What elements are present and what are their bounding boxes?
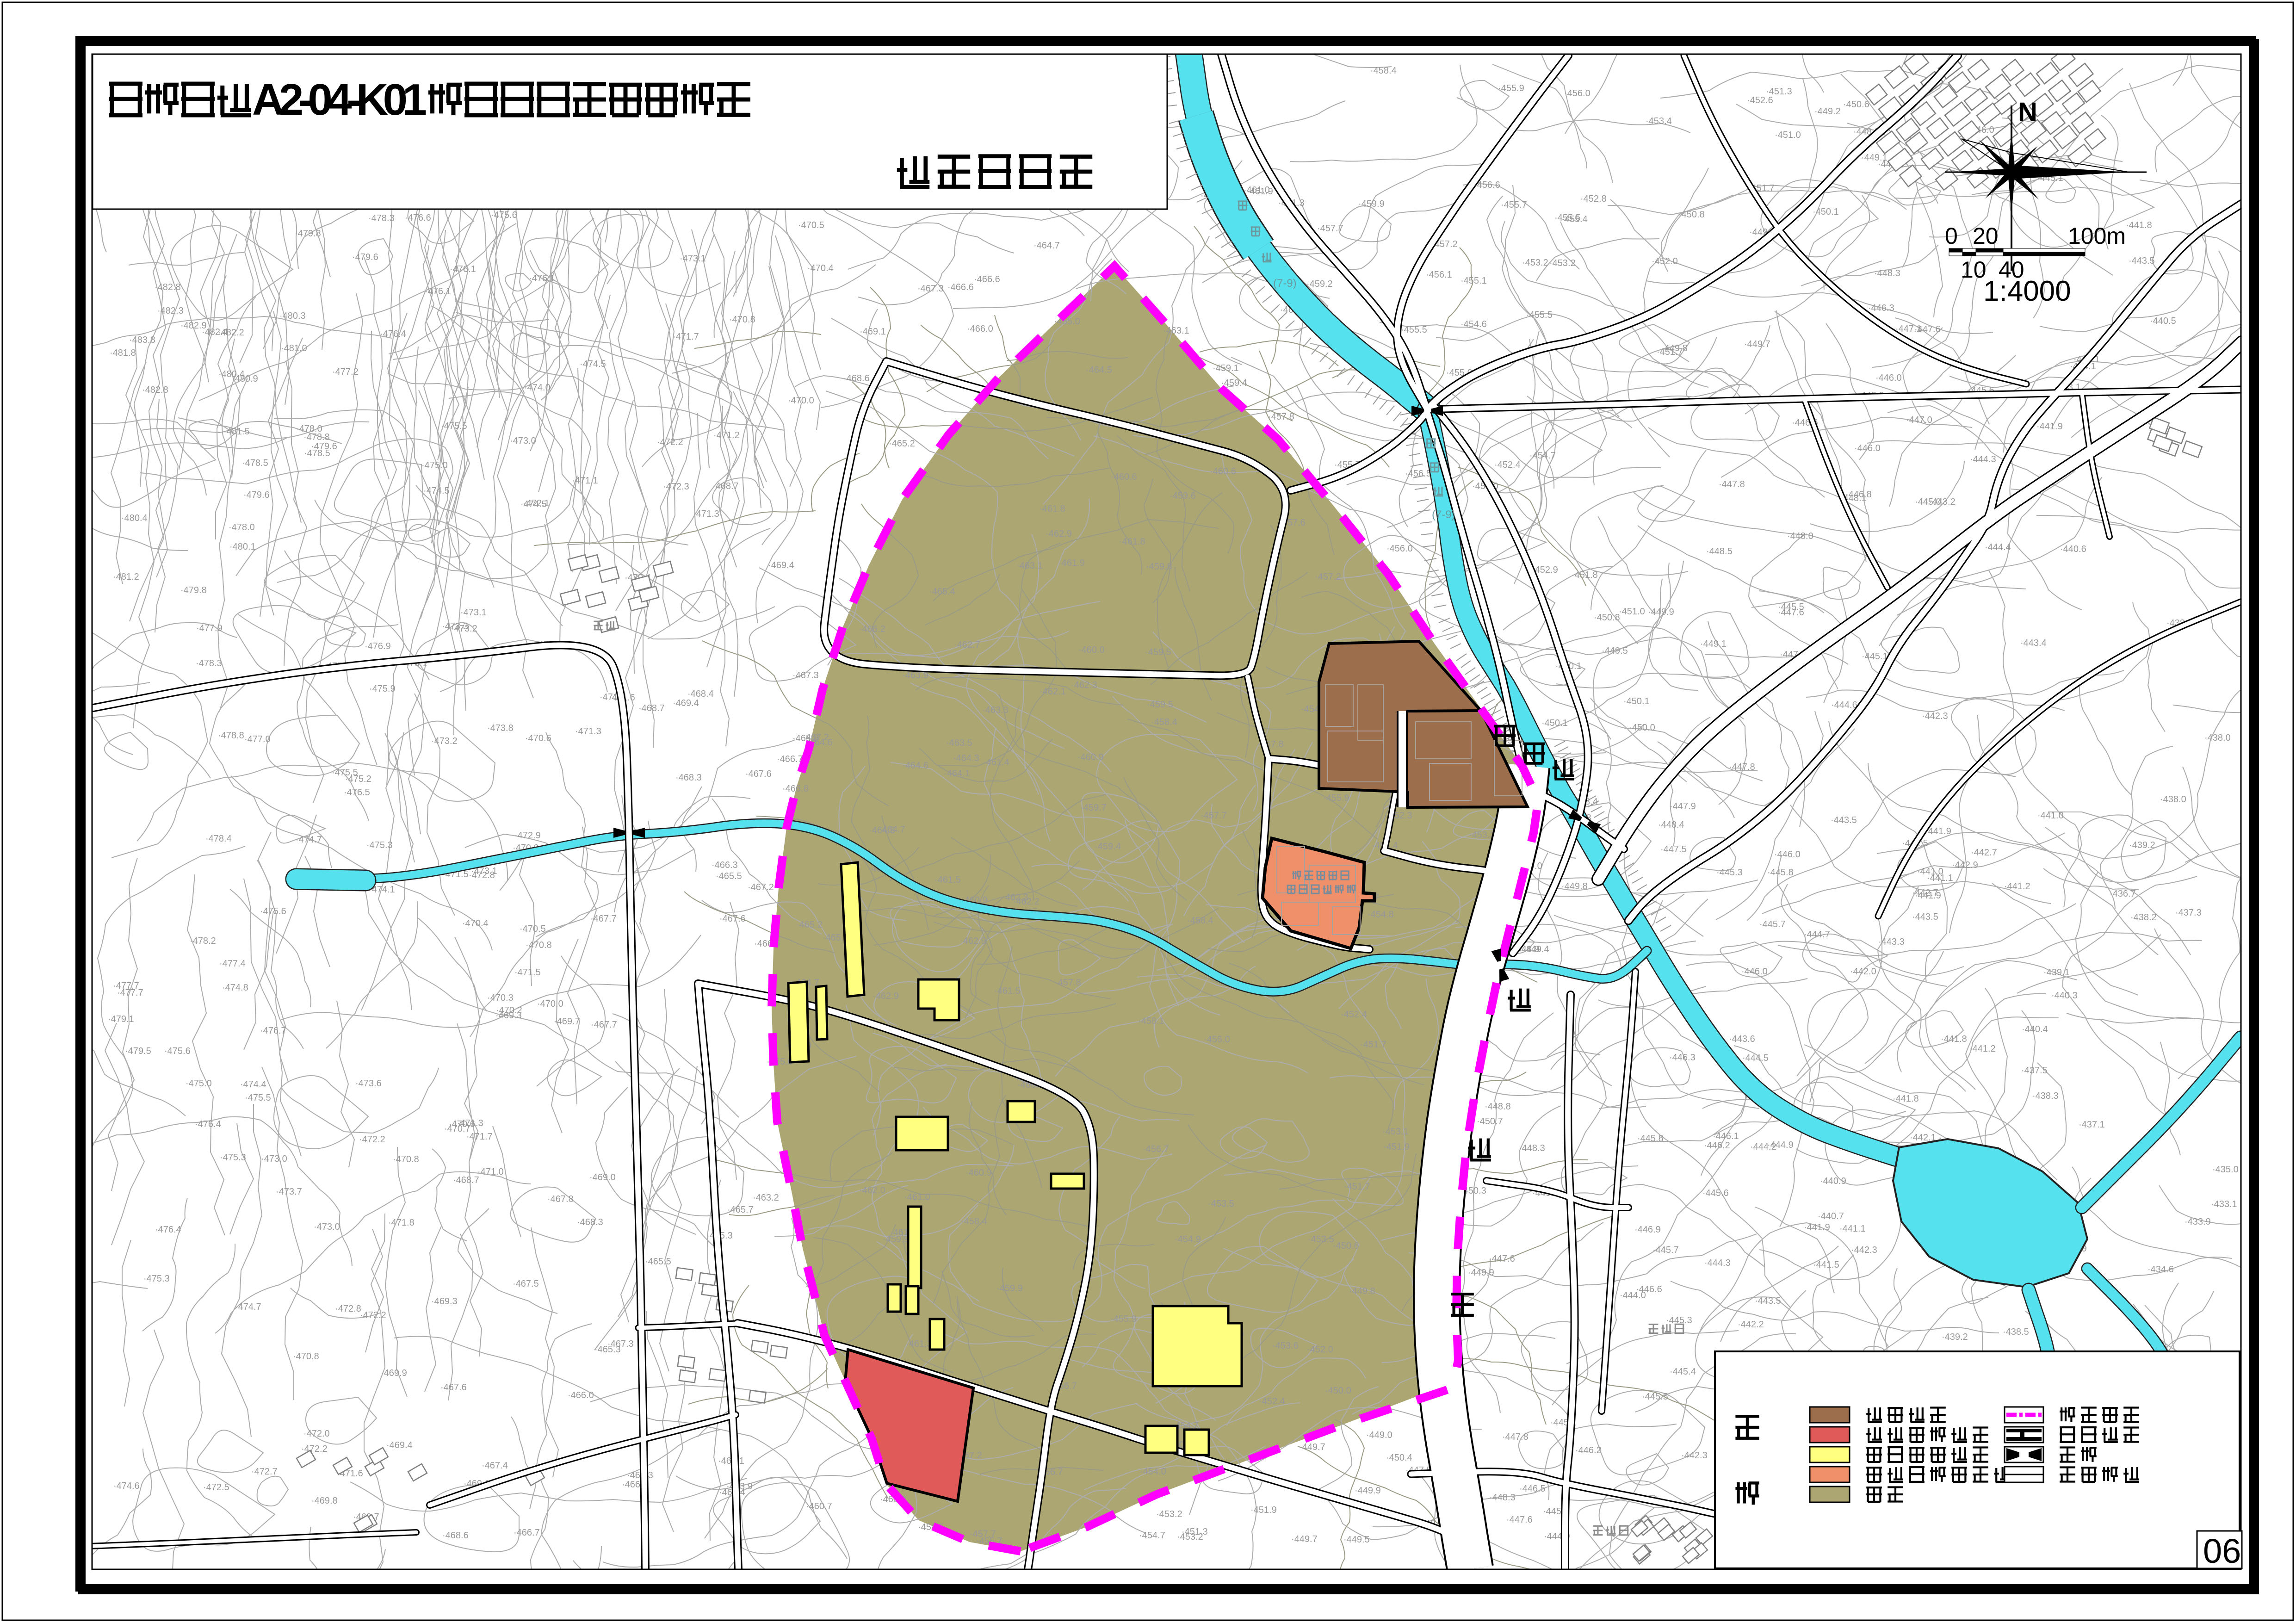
svg-text:·451.7: ·451.7 bbox=[1657, 347, 1683, 357]
svg-text:·465.0: ·465.0 bbox=[1054, 316, 1080, 327]
svg-text:·474.5: ·474.5 bbox=[580, 359, 606, 369]
svg-text:·474.6: ·474.6 bbox=[113, 1481, 140, 1491]
svg-text:·449.7: ·449.7 bbox=[1299, 1442, 1325, 1452]
svg-text:·472.2: ·472.2 bbox=[657, 437, 683, 447]
svg-text:·461.5: ·461.5 bbox=[934, 875, 961, 885]
svg-text:·449.9: ·449.9 bbox=[1355, 1486, 1381, 1496]
svg-text:·444.7: ·444.7 bbox=[1804, 929, 1830, 940]
svg-text:·447.6: ·447.6 bbox=[1506, 1515, 1533, 1525]
svg-text:·459.9: ·459.9 bbox=[1358, 199, 1385, 209]
svg-text:·446.2: ·446.2 bbox=[1704, 1140, 1730, 1151]
svg-text:·469.8: ·469.8 bbox=[311, 1496, 338, 1506]
svg-text:·476.1: ·476.1 bbox=[529, 273, 555, 284]
svg-text:·475.6: ·475.6 bbox=[260, 906, 286, 917]
svg-text:·436.7: ·436.7 bbox=[2110, 889, 2136, 899]
svg-text:·459.5: ·459.5 bbox=[1145, 647, 1171, 657]
svg-text:·446.3: ·446.3 bbox=[1669, 1053, 1696, 1063]
svg-text:·466.6: ·466.6 bbox=[974, 274, 1000, 285]
svg-text:·480.3: ·480.3 bbox=[279, 311, 306, 321]
svg-text:·452.8: ·452.8 bbox=[1580, 194, 1607, 204]
svg-text:·477.2: ·477.2 bbox=[332, 367, 359, 377]
svg-text:·448.4: ·448.4 bbox=[1658, 820, 1684, 830]
svg-text:·459.5: ·459.5 bbox=[1147, 700, 1173, 710]
svg-text:·470.0: ·470.0 bbox=[537, 999, 563, 1009]
svg-text:·466.7: ·466.7 bbox=[777, 754, 803, 764]
svg-text:·441.1: ·441.1 bbox=[1927, 873, 1953, 883]
svg-text:·466.2: ·466.2 bbox=[859, 624, 885, 634]
svg-text:·449.0: ·449.0 bbox=[1366, 1430, 1392, 1440]
svg-text:(7-9): (7-9) bbox=[1432, 508, 1455, 521]
svg-text:·455.5: ·455.5 bbox=[1554, 213, 1581, 223]
svg-text:·452.4: ·452.4 bbox=[1341, 1010, 1367, 1020]
svg-text:·464.7: ·464.7 bbox=[879, 824, 905, 835]
svg-text:·483.8: ·483.8 bbox=[129, 335, 155, 345]
svg-text:·449.2: ·449.2 bbox=[1814, 106, 1841, 117]
svg-text:·468.3: ·468.3 bbox=[577, 1217, 603, 1227]
svg-text:·467.7: ·467.7 bbox=[591, 1020, 617, 1030]
svg-text:·474.7: ·474.7 bbox=[296, 835, 322, 845]
svg-text:·448.0: ·448.0 bbox=[1787, 531, 1813, 541]
svg-text:·445.4: ·445.4 bbox=[1670, 1367, 1696, 1377]
svg-text:·471.3: ·471.3 bbox=[575, 726, 601, 737]
svg-text:·470.8: ·470.8 bbox=[729, 315, 755, 325]
svg-text:·446.0: ·446.0 bbox=[1875, 373, 1902, 383]
svg-text:·472.7: ·472.7 bbox=[251, 1467, 278, 1477]
svg-text:·473.1: ·473.1 bbox=[680, 254, 706, 264]
svg-text:·444.3: ·444.3 bbox=[1704, 1258, 1731, 1268]
svg-text:·460.9: ·460.9 bbox=[1077, 752, 1104, 762]
svg-text:·447.6: ·447.6 bbox=[1778, 607, 1804, 618]
svg-text:·471.0: ·471.0 bbox=[477, 1167, 504, 1177]
svg-text:·475.6: ·475.6 bbox=[164, 1046, 191, 1056]
svg-text:·456.0: ·456.0 bbox=[1386, 544, 1413, 554]
svg-text:·473.1: ·473.1 bbox=[460, 607, 487, 618]
svg-text:·474.0: ·474.0 bbox=[524, 383, 551, 393]
svg-text:·465.5: ·465.5 bbox=[716, 871, 742, 881]
svg-text:·473.0: ·473.0 bbox=[510, 436, 536, 446]
svg-text:·446.0: ·446.0 bbox=[1854, 443, 1881, 453]
svg-text:·475.9: ·475.9 bbox=[369, 684, 396, 694]
svg-text:100m: 100m bbox=[2068, 223, 2126, 249]
svg-text:·461.9: ·461.9 bbox=[1247, 186, 1273, 197]
svg-text:·468.7: ·468.7 bbox=[453, 1175, 479, 1185]
svg-text:·435.0: ·435.0 bbox=[2212, 1165, 2239, 1175]
svg-text:·449.9: ·449.9 bbox=[1468, 1268, 1494, 1278]
svg-text:·474.5: ·474.5 bbox=[423, 486, 450, 496]
svg-text:·461.8: ·461.8 bbox=[1119, 537, 1145, 547]
svg-text:·446.2: ·446.2 bbox=[1575, 1445, 1602, 1456]
svg-text:·452.6: ·452.6 bbox=[1747, 95, 1773, 105]
svg-text:·476.4: ·476.4 bbox=[195, 1119, 221, 1129]
svg-text:·449.9: ·449.9 bbox=[1648, 607, 1674, 617]
svg-text:·446.3: ·446.3 bbox=[1868, 303, 1894, 313]
svg-text:·475.3: ·475.3 bbox=[143, 1274, 170, 1284]
svg-text:·456.1: ·456.1 bbox=[1426, 270, 1452, 280]
svg-text:(7-9): (7-9) bbox=[1273, 277, 1297, 290]
svg-text:·453.1: ·453.1 bbox=[1382, 1127, 1409, 1137]
svg-text:·445.7: ·445.7 bbox=[1759, 919, 1786, 929]
svg-text:·445.7: ·445.7 bbox=[1652, 1245, 1679, 1255]
svg-text:·444.4: ·444.4 bbox=[1985, 542, 2011, 552]
svg-text:·444.5: ·444.5 bbox=[1742, 1053, 1769, 1063]
svg-text:·441.8: ·441.8 bbox=[1893, 1094, 1919, 1104]
svg-text:·467.2: ·467.2 bbox=[748, 882, 774, 892]
svg-text:·455.9: ·455.9 bbox=[1110, 1314, 1137, 1324]
svg-text:·472.2: ·472.2 bbox=[360, 1310, 386, 1320]
svg-text:·469.7: ·469.7 bbox=[554, 1016, 580, 1027]
svg-text:·464.1: ·464.1 bbox=[944, 768, 970, 779]
svg-text:·453.4: ·453.4 bbox=[1646, 116, 1672, 126]
svg-text:·438.2: ·438.2 bbox=[2130, 912, 2157, 923]
svg-text:·472.5: ·472.5 bbox=[203, 1482, 229, 1493]
svg-text:·467.3: ·467.3 bbox=[607, 1339, 634, 1349]
svg-text:·479.8: ·479.8 bbox=[180, 585, 207, 595]
svg-text:·457.8: ·457.8 bbox=[1055, 978, 1081, 988]
svg-text:·467.5: ·467.5 bbox=[513, 1279, 539, 1289]
svg-text:·440.5: ·440.5 bbox=[2150, 316, 2176, 326]
svg-text:·464.5: ·464.5 bbox=[1086, 365, 1112, 375]
svg-text:·477.9: ·477.9 bbox=[196, 623, 223, 633]
svg-text:·479.6: ·479.6 bbox=[243, 490, 270, 500]
svg-text:·453.3: ·453.3 bbox=[1469, 830, 1495, 840]
svg-text:·470.4: ·470.4 bbox=[807, 263, 834, 273]
svg-text:·482.3: ·482.3 bbox=[157, 306, 184, 316]
svg-text:·454.6: ·454.6 bbox=[1461, 319, 1487, 329]
svg-text:·447.8: ·447.8 bbox=[1729, 762, 1755, 772]
svg-text:·450.0: ·450.0 bbox=[1629, 723, 1655, 733]
svg-text:·463.3: ·463.3 bbox=[982, 705, 1009, 715]
svg-text:·461.9: ·461.9 bbox=[1058, 558, 1085, 568]
svg-text:·470.5: ·470.5 bbox=[798, 220, 824, 230]
svg-text:·476.5: ·476.5 bbox=[344, 787, 370, 798]
svg-text:·475.3: ·475.3 bbox=[220, 1152, 246, 1163]
svg-text:·477.0: ·477.0 bbox=[244, 734, 271, 744]
svg-text:·452.4: ·452.4 bbox=[1494, 460, 1521, 470]
svg-text:·459.7: ·459.7 bbox=[1080, 803, 1107, 813]
svg-text:·443.6: ·443.6 bbox=[1729, 1034, 1755, 1044]
svg-text:·470.3: ·470.3 bbox=[487, 993, 514, 1003]
svg-text:·471.8: ·471.8 bbox=[388, 1218, 415, 1228]
svg-text:·473.8: ·473.8 bbox=[487, 723, 514, 733]
svg-text:·445.6: ·445.6 bbox=[1702, 1188, 1729, 1198]
svg-text:·468.4: ·468.4 bbox=[687, 689, 714, 699]
svg-text:·478.5: ·478.5 bbox=[242, 458, 268, 468]
svg-text:·449.7: ·449.7 bbox=[1744, 339, 1770, 349]
svg-text:·479.1: ·479.1 bbox=[108, 1014, 134, 1024]
svg-text:·442.3: ·442.3 bbox=[1922, 711, 1948, 721]
svg-text:·450.8: ·450.8 bbox=[1678, 210, 1705, 220]
svg-text:·442.0: ·442.0 bbox=[1850, 966, 1876, 977]
svg-text:20: 20 bbox=[1973, 223, 1999, 249]
svg-text:·447.0: ·447.0 bbox=[1906, 415, 1932, 425]
svg-text:·440.3: ·440.3 bbox=[2051, 991, 2078, 1001]
svg-text:·461.8: ·461.8 bbox=[1039, 504, 1065, 514]
svg-text:·438.3: ·438.3 bbox=[2032, 1091, 2059, 1101]
svg-text:·474.7: ·474.7 bbox=[235, 1302, 261, 1312]
svg-text:·473.7: ·473.7 bbox=[276, 1187, 302, 1197]
svg-text:·467.6: ·467.6 bbox=[719, 914, 746, 924]
svg-text:·473.6: ·473.6 bbox=[355, 1078, 382, 1089]
svg-text:·450.1: ·450.1 bbox=[1623, 696, 1650, 706]
svg-text:·459.9: ·459.9 bbox=[996, 1283, 1023, 1294]
svg-text:·472.9: ·472.9 bbox=[514, 830, 541, 841]
svg-text:·446.0: ·446.0 bbox=[1741, 966, 1768, 977]
svg-text:·455.9: ·455.9 bbox=[1323, 793, 1349, 803]
svg-text:·477.7: ·477.7 bbox=[113, 981, 139, 991]
svg-text:·469.4: ·469.4 bbox=[768, 560, 794, 570]
svg-text:·450.1: ·450.1 bbox=[1541, 718, 1568, 728]
svg-text:·453.6: ·453.6 bbox=[1272, 1341, 1299, 1351]
svg-text:·476.7: ·476.7 bbox=[260, 1026, 286, 1036]
svg-text:·471.2: ·471.2 bbox=[713, 430, 740, 440]
svg-text:·441.2: ·441.2 bbox=[1969, 1044, 1996, 1054]
svg-text:·462.3: ·462.3 bbox=[1071, 680, 1097, 690]
svg-text:·473.2: ·473.2 bbox=[431, 736, 458, 746]
svg-text:10: 10 bbox=[1961, 257, 1987, 283]
svg-text:·481.5: ·481.5 bbox=[223, 427, 250, 437]
svg-text:·479.8: ·479.8 bbox=[295, 229, 321, 239]
svg-text:·441.0: ·441.0 bbox=[2037, 811, 2064, 821]
svg-text:·444.6: ·444.6 bbox=[1831, 700, 1857, 710]
svg-text:·455.1: ·455.1 bbox=[1461, 276, 1487, 286]
svg-text:·481.0: ·481.0 bbox=[281, 343, 307, 353]
svg-text:·455.5: ·455.5 bbox=[1401, 325, 1427, 335]
svg-text:·475.5: ·475.5 bbox=[441, 421, 467, 431]
svg-text:·470.6: ·470.6 bbox=[525, 733, 551, 743]
svg-text:·466.0: ·466.0 bbox=[967, 324, 993, 334]
svg-text:·465.4: ·465.4 bbox=[929, 587, 955, 597]
svg-text:·451.9: ·451.9 bbox=[1250, 1505, 1277, 1515]
svg-text:·472.8: ·472.8 bbox=[335, 1304, 361, 1314]
svg-text:·443.5: ·443.5 bbox=[1831, 815, 1857, 825]
svg-text:·471.1: ·471.1 bbox=[572, 476, 598, 486]
svg-text:·479.6: ·479.6 bbox=[352, 252, 378, 262]
svg-text:·467.6: ·467.6 bbox=[440, 1382, 467, 1393]
svg-text:·482.8: ·482.8 bbox=[142, 385, 168, 395]
svg-text:·458.4: ·458.4 bbox=[1151, 717, 1177, 727]
svg-text:·482.2: ·482.2 bbox=[218, 328, 244, 338]
svg-text:·451.0: ·451.0 bbox=[1775, 130, 1801, 140]
svg-text:·438.0: ·438.0 bbox=[2160, 794, 2186, 805]
svg-text:·470.4: ·470.4 bbox=[462, 918, 489, 929]
svg-text:·467.6: ·467.6 bbox=[745, 769, 772, 779]
svg-text:·460.7: ·460.7 bbox=[806, 1501, 832, 1511]
svg-text:·443.4: ·443.4 bbox=[2020, 638, 2047, 648]
svg-text:·467.3: ·467.3 bbox=[792, 670, 819, 681]
svg-text:·465.5: ·465.5 bbox=[645, 1257, 671, 1267]
svg-text:·466.8: ·466.8 bbox=[782, 784, 809, 794]
svg-text:·481.8: ·481.8 bbox=[110, 348, 136, 358]
svg-text:·441.1: ·441.1 bbox=[1839, 1224, 1866, 1234]
svg-text:·469.9: ·469.9 bbox=[381, 1368, 407, 1378]
svg-text:·454.0: ·454.0 bbox=[1140, 1467, 1166, 1477]
svg-text:·470.8: ·470.8 bbox=[293, 1351, 319, 1362]
svg-text:·466.0: ·466.0 bbox=[568, 1390, 594, 1400]
svg-text:·465.2: ·465.2 bbox=[796, 920, 823, 930]
svg-text:1:4000: 1:4000 bbox=[1983, 275, 2071, 307]
svg-text:·468.7: ·468.7 bbox=[712, 481, 739, 491]
svg-text:·438.0: ·438.0 bbox=[2204, 733, 2231, 743]
svg-text:·445.8: ·445.8 bbox=[1637, 1134, 1664, 1144]
svg-text:·475.0: ·475.0 bbox=[186, 1078, 212, 1089]
svg-text:·450.6: ·450.6 bbox=[1843, 99, 1869, 110]
svg-text:·455.9: ·455.9 bbox=[1498, 83, 1524, 93]
svg-text:·479.5: ·479.5 bbox=[125, 1046, 151, 1056]
svg-text:A2-04-K01: A2-04-K01 bbox=[252, 75, 427, 124]
svg-text:·469.4: ·469.4 bbox=[386, 1440, 413, 1450]
svg-text:·460.6: ·460.6 bbox=[1210, 466, 1236, 477]
svg-text:·482.8: ·482.8 bbox=[155, 282, 181, 292]
svg-text:·471.7: ·471.7 bbox=[673, 332, 699, 342]
svg-text:·468.3: ·468.3 bbox=[675, 773, 702, 783]
svg-text:·453.5: ·453.5 bbox=[1308, 1234, 1334, 1245]
svg-text:·442.9: ·442.9 bbox=[1952, 860, 1978, 870]
svg-text:·476.1: ·476.1 bbox=[425, 286, 451, 297]
svg-text:·461.4: ·461.4 bbox=[983, 757, 1009, 768]
svg-text:·470.7: ·470.7 bbox=[444, 1124, 470, 1134]
svg-text:·476.6: ·476.6 bbox=[405, 213, 431, 223]
svg-text:·474.4: ·474.4 bbox=[240, 1079, 266, 1090]
svg-text:·467.4: ·467.4 bbox=[482, 1461, 508, 1471]
svg-text:·453.5: ·453.5 bbox=[1208, 1199, 1234, 1209]
svg-text:·454.8: ·454.8 bbox=[1368, 910, 1394, 920]
svg-text:·458.4: ·458.4 bbox=[1187, 916, 1213, 926]
svg-text:·456.7: ·456.7 bbox=[1143, 1144, 1169, 1154]
svg-text:·442.7: ·442.7 bbox=[1971, 848, 1997, 858]
svg-text:·455.7: ·455.7 bbox=[1501, 200, 1527, 210]
svg-text:·447.8: ·447.8 bbox=[1502, 1432, 1529, 1442]
svg-text:·464.6: ·464.6 bbox=[902, 761, 928, 771]
svg-text:·457.7: ·457.7 bbox=[970, 1529, 996, 1539]
svg-text:·467.7: ·467.7 bbox=[590, 914, 617, 924]
svg-text:·467.3: ·467.3 bbox=[917, 284, 944, 294]
svg-text:·433.9: ·433.9 bbox=[2185, 1217, 2211, 1227]
svg-text:·446.0: ·446.0 bbox=[1774, 849, 1801, 860]
svg-text:·473.2: ·473.2 bbox=[451, 624, 477, 634]
svg-text:·454.7: ·454.7 bbox=[1529, 451, 1556, 461]
svg-text:·459.9: ·459.9 bbox=[883, 1234, 909, 1245]
svg-text:·452.0: ·452.0 bbox=[1307, 1344, 1333, 1355]
svg-text:·465.7: ·465.7 bbox=[727, 1205, 754, 1215]
svg-text:·441.8: ·441.8 bbox=[2126, 220, 2152, 230]
svg-text:·478.0: ·478.0 bbox=[229, 522, 255, 533]
svg-text:·457.7: ·457.7 bbox=[1317, 223, 1343, 234]
svg-text:·466.3: ·466.3 bbox=[712, 860, 738, 870]
svg-text:·451.7: ·451.7 bbox=[1360, 1040, 1386, 1050]
svg-text:·459.2: ·459.2 bbox=[1306, 279, 1333, 289]
svg-text:·451.7: ·451.7 bbox=[1344, 1182, 1370, 1192]
svg-text:·442.2: ·442.2 bbox=[1738, 1319, 1764, 1330]
svg-text:·450.6: ·450.6 bbox=[1333, 1241, 1359, 1251]
svg-text:·462.9: ·462.9 bbox=[960, 936, 986, 946]
svg-text:·474.8: ·474.8 bbox=[222, 983, 248, 993]
svg-text:·456.0: ·456.0 bbox=[1564, 88, 1590, 99]
svg-text:·450.1: ·450.1 bbox=[1813, 207, 1839, 217]
svg-text:·462.9: ·462.9 bbox=[873, 991, 899, 1001]
svg-text:·471.5: ·471.5 bbox=[514, 967, 541, 978]
svg-text:·470.8: ·470.8 bbox=[393, 1154, 419, 1165]
svg-text:·445.8: ·445.8 bbox=[1767, 867, 1794, 878]
svg-text:·462.0: ·462.0 bbox=[859, 1185, 885, 1196]
svg-text:·446.5: ·446.5 bbox=[1519, 1484, 1546, 1494]
svg-text:·450.4: ·450.4 bbox=[1386, 1453, 1412, 1463]
svg-text:·476.4: ·476.4 bbox=[155, 1225, 181, 1235]
svg-text:·468.7: ·468.7 bbox=[638, 703, 665, 713]
svg-text:·460.6: ·460.6 bbox=[1111, 472, 1137, 482]
svg-text:·459.6: ·459.6 bbox=[1170, 491, 1196, 501]
svg-text:·440.7: ·440.7 bbox=[1818, 1211, 1844, 1221]
svg-text:·475.0: ·475.0 bbox=[421, 460, 448, 471]
svg-text:·463.5: ·463.5 bbox=[946, 738, 972, 748]
svg-text:·473.0: ·473.0 bbox=[261, 1154, 287, 1164]
svg-text:·444.3: ·444.3 bbox=[1970, 454, 1996, 465]
svg-text:·473.0: ·473.0 bbox=[314, 1222, 340, 1232]
svg-text:·449.5: ·449.5 bbox=[1343, 1535, 1370, 1545]
svg-text:·439.2: ·439.2 bbox=[1942, 1332, 1968, 1342]
svg-text:·443.2: ·443.2 bbox=[1929, 497, 1956, 507]
svg-text:·440.9: ·440.9 bbox=[1820, 1176, 1846, 1186]
svg-text:·448.5: ·448.5 bbox=[1706, 546, 1733, 557]
svg-text:·451.9: ·451.9 bbox=[1383, 1142, 1410, 1152]
svg-text:·475.3: ·475.3 bbox=[366, 840, 393, 850]
svg-text:·445.1: ·445.1 bbox=[1862, 651, 1888, 662]
svg-text:·441.5: ·441.5 bbox=[1813, 1260, 1839, 1270]
svg-text:·462.1: ·462.1 bbox=[1040, 687, 1066, 697]
svg-text:·446.9: ·446.9 bbox=[1634, 1225, 1661, 1235]
svg-text:·457.7: ·457.7 bbox=[1201, 811, 1227, 821]
svg-text:·478.4: ·478.4 bbox=[205, 834, 232, 844]
svg-text:·469.3: ·469.3 bbox=[431, 1296, 458, 1307]
svg-text:·476.9: ·476.9 bbox=[365, 641, 391, 651]
svg-text:·453.2: ·453.2 bbox=[1522, 258, 1548, 268]
svg-text:0: 0 bbox=[1945, 223, 1958, 249]
svg-text:·445.5: ·445.5 bbox=[1642, 1392, 1668, 1402]
svg-text:·453.2: ·453.2 bbox=[1156, 1509, 1182, 1519]
svg-text:·444.2: ·444.2 bbox=[1750, 1142, 1776, 1152]
svg-text:·475.5: ·475.5 bbox=[245, 1093, 271, 1103]
svg-text:·447.6: ·447.6 bbox=[1489, 1254, 1515, 1264]
svg-text:06: 06 bbox=[2203, 1532, 2241, 1570]
svg-text:·478.3: ·478.3 bbox=[368, 213, 395, 223]
svg-text:·449.8: ·449.8 bbox=[1349, 1286, 1375, 1296]
svg-text:·449.1: ·449.1 bbox=[1700, 639, 1727, 649]
svg-text:·459.4: ·459.4 bbox=[1095, 842, 1121, 852]
svg-text:·448.8: ·448.8 bbox=[1485, 1102, 1511, 1112]
svg-text:·441.9: ·441.9 bbox=[2036, 421, 2063, 432]
svg-text:·434.6: ·434.6 bbox=[2147, 1264, 2174, 1275]
svg-text:·449.7: ·449.7 bbox=[1291, 1534, 1318, 1544]
svg-text:·478.2: ·478.2 bbox=[190, 936, 216, 946]
svg-text:·442.3: ·442.3 bbox=[1681, 1450, 1708, 1461]
svg-text:·452.0: ·452.0 bbox=[1652, 256, 1678, 266]
svg-text:·441.2: ·441.2 bbox=[2004, 881, 2030, 892]
svg-text:·465.8: ·465.8 bbox=[792, 733, 819, 743]
svg-text:·478.8: ·478.8 bbox=[218, 731, 244, 741]
svg-text:·468.6: ·468.6 bbox=[843, 373, 870, 384]
svg-text:·461.5: ·461.5 bbox=[994, 986, 1021, 996]
svg-text:·445.3: ·445.3 bbox=[1716, 867, 1743, 878]
svg-text:·472.2: ·472.2 bbox=[359, 1134, 385, 1145]
svg-text:·450.0: ·450.0 bbox=[1325, 1386, 1351, 1396]
svg-text:·472.3: ·472.3 bbox=[663, 482, 689, 492]
svg-text:·441.8: ·441.8 bbox=[1941, 1034, 1967, 1044]
svg-text:·443.5: ·443.5 bbox=[1755, 1296, 1781, 1306]
svg-text:·481.2: ·481.2 bbox=[113, 572, 139, 582]
svg-text:·455.5: ·455.5 bbox=[1526, 310, 1553, 320]
svg-text:·450.7: ·450.7 bbox=[1477, 1116, 1503, 1127]
svg-text:·454.7: ·454.7 bbox=[1139, 1530, 1165, 1541]
svg-text:·477.4: ·477.4 bbox=[219, 959, 246, 969]
